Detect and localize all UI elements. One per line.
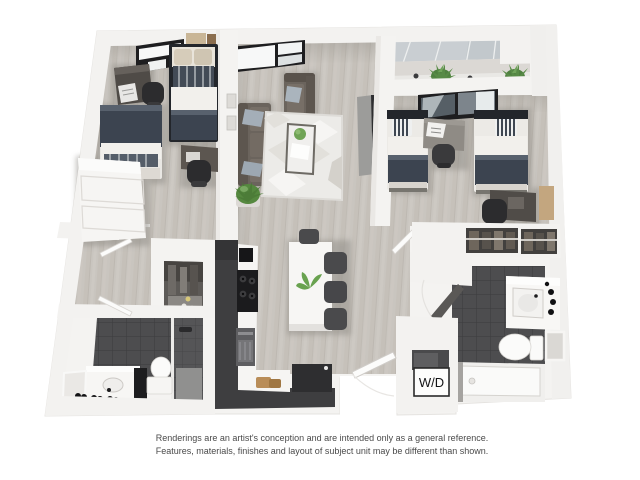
svg-text:Features, materials, finishes: Features, materials, finishes and layout… [156, 446, 489, 456]
svg-text:W/D: W/D [419, 375, 444, 390]
svg-text:Renderings are an artist's con: Renderings are an artist's conception an… [156, 433, 488, 443]
